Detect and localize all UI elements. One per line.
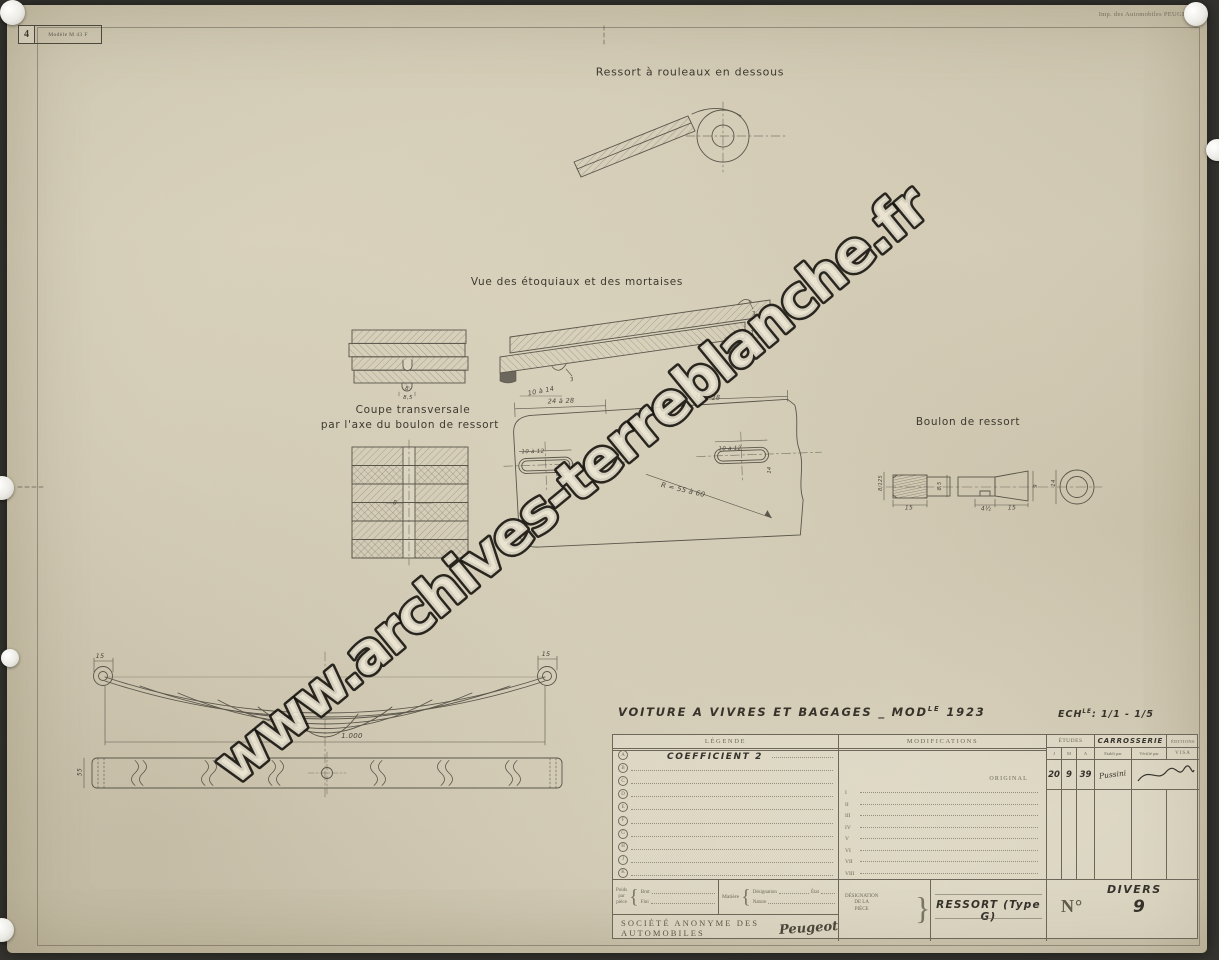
- figure-leaf-plan-view: [501, 389, 824, 548]
- col-annee: A: [1077, 748, 1095, 759]
- printer-note: Imp. des Automobiles PEUGEOT.: [1099, 11, 1197, 18]
- legend-rows: A COEFFICIENT 2 B C: [613, 748, 838, 879]
- modification-row: II: [845, 802, 1038, 808]
- weight-label: Poids par pièce: [616, 888, 627, 907]
- dotted-leader: [860, 814, 1038, 816]
- etabli-signature: Pussini: [1095, 760, 1132, 789]
- material-cell: Matière { DésignationÉtat Nature: [719, 880, 839, 914]
- project-title: VOITURE A VIVRES ET BAGAGES _ MODLE 1923: [618, 705, 986, 719]
- department-value: CARROSSERIE: [1095, 735, 1167, 747]
- piece-name: RESSORT (Type G): [931, 899, 1046, 923]
- modification-row: III: [845, 813, 1038, 819]
- dotted-leader: [860, 837, 1038, 839]
- etudes-column: ÉTUDES CARROSSERIE ÉDITIONS J M A Etabli…: [1047, 735, 1199, 879]
- title-block-bottom: Poids par pièce { Brut Fini Matière { Dé…: [613, 879, 1199, 940]
- etudes-label: ÉTUDES: [1047, 735, 1095, 747]
- legend-row: D: [613, 787, 838, 800]
- drawing-number-cell: N° DIVERS 9: [1047, 880, 1199, 941]
- brut-label: Brut: [641, 890, 650, 895]
- stamp-number: 4: [18, 25, 35, 44]
- legend-row: G: [613, 827, 838, 840]
- figure-leaf-stack: [349, 330, 468, 396]
- peugeot-logo: Peugeot: [778, 918, 838, 937]
- scale-note: ECHLE: 1/1 - 1/5: [1058, 709, 1154, 720]
- dotted-leader: [860, 791, 1038, 793]
- brace-glyph: {: [629, 887, 639, 907]
- matiere-label: Matière: [722, 894, 739, 900]
- figure-etoquiaux-view: [500, 299, 770, 396]
- stamp-model: Modèle M 43 F: [35, 25, 102, 44]
- figure-roller-spring: [574, 102, 786, 177]
- signature-scribble-icon: [1136, 764, 1196, 786]
- date-month: 9: [1062, 760, 1077, 789]
- date-year: 39: [1077, 760, 1095, 789]
- column-rules: [1047, 790, 1199, 879]
- legend-row: B: [613, 761, 838, 774]
- title-block-table: LÉGENDE A COEFFICIENT 2 B: [612, 734, 1198, 939]
- dotted-leader: [860, 849, 1038, 851]
- figure-cross-section: [352, 440, 468, 565]
- etudes-header-row: ÉTUDES CARROSSERIE ÉDITIONS: [1047, 735, 1199, 748]
- dotted-leader: [631, 848, 833, 850]
- editions-label: ÉDITIONS: [1167, 735, 1199, 747]
- numero-value: 9: [1133, 897, 1145, 917]
- numero-label: N°: [1061, 896, 1083, 917]
- designation-label: Désignation: [753, 890, 777, 895]
- registration-marks: [18, 26, 604, 487]
- legend-row: E: [613, 800, 838, 813]
- modification-row: V: [845, 836, 1038, 842]
- figure-spring-side-view: [84, 652, 557, 800]
- legend-row: C: [613, 774, 838, 787]
- legend-column: LÉGENDE A COEFFICIENT 2 B: [613, 735, 839, 879]
- dotted-leader: [631, 782, 833, 784]
- col-verifie: Vérifié par: [1132, 748, 1167, 759]
- dotted-leader: [631, 861, 833, 863]
- date-columns-row: J M A Etabli par Vérifié par VISA: [1047, 748, 1199, 760]
- fini-label: Fini: [641, 900, 649, 905]
- figure-spring-plan-view: [92, 752, 562, 794]
- modifications-body: ORIGINAL I II: [839, 748, 1046, 879]
- dotted-leader: [631, 835, 833, 837]
- modification-row: VIII: [845, 871, 1038, 877]
- scanned-drawing-photo: Ressort à rouleaux en dessousVue des éto…: [0, 0, 1219, 960]
- legend-row: H: [613, 840, 838, 853]
- legend-row: F: [613, 813, 838, 826]
- clip-artifact: [0, 0, 25, 25]
- company-cell: SOCIÉTÉ ANONYME DES AUTOMOBILES Peugeot: [613, 914, 839, 941]
- modification-row: I: [845, 790, 1038, 796]
- etat-label: État: [811, 890, 819, 895]
- modification-row: IV: [845, 825, 1038, 831]
- corner-stamp: 4 Modèle M 43 F: [18, 25, 102, 44]
- date-values-row: 20 9 39 Pussini: [1047, 760, 1199, 790]
- modification-rows: I II III: [845, 790, 1038, 877]
- dotted-leader: [631, 808, 833, 810]
- brace-glyph: {: [915, 892, 930, 924]
- title-block: VOITURE A VIVRES ET BAGAGES _ MODLE 1923…: [612, 701, 1198, 940]
- clip-artifact: [1184, 2, 1208, 26]
- weight-cell: Poids par pièce { Brut Fini: [613, 880, 719, 914]
- date-day: 20: [1047, 760, 1062, 789]
- dotted-leader: [631, 874, 833, 876]
- piece-designation-cell: DÉSIGNATION DE LA PIÈCE {: [839, 880, 931, 941]
- brace-glyph: {: [741, 887, 751, 907]
- numero-category: DIVERS: [1107, 883, 1162, 896]
- visa-signature: [1132, 760, 1199, 789]
- dotted-leader: [860, 826, 1038, 828]
- dotted-leader: [860, 803, 1038, 805]
- col-jour: J: [1047, 748, 1062, 759]
- dotted-leader: [631, 795, 833, 797]
- designation-label-stack: DÉSIGNATION DE LA PIÈCE: [845, 894, 878, 913]
- modification-row: VI: [845, 848, 1038, 854]
- clip-artifact: [1, 649, 19, 667]
- original-label: ORIGINAL: [989, 776, 1028, 782]
- dotted-leader: [631, 822, 833, 824]
- company-name: SOCIÉTÉ ANONYME DES AUTOMOBILES: [621, 918, 772, 938]
- legend-row: J: [613, 853, 838, 866]
- piece-name-cell: RESSORT (Type G): [931, 880, 1047, 941]
- dotted-leader: [631, 769, 833, 771]
- legend-row: A COEFFICIENT 2: [613, 748, 838, 761]
- legend-row: K: [613, 866, 838, 879]
- col-etabli: Etabli par: [1095, 748, 1132, 759]
- modification-row: VII: [845, 859, 1038, 865]
- figure-spring-bolt: [884, 470, 1102, 507]
- dotted-leader: [772, 756, 833, 758]
- nature-label: Nature: [753, 900, 767, 905]
- visa-label: VISA: [1167, 748, 1199, 759]
- col-mois: M: [1062, 748, 1077, 759]
- dotted-leader: [860, 872, 1038, 874]
- modifications-column: MODIFICATIONS ORIGINAL I II: [839, 735, 1047, 879]
- dotted-leader: [860, 860, 1038, 862]
